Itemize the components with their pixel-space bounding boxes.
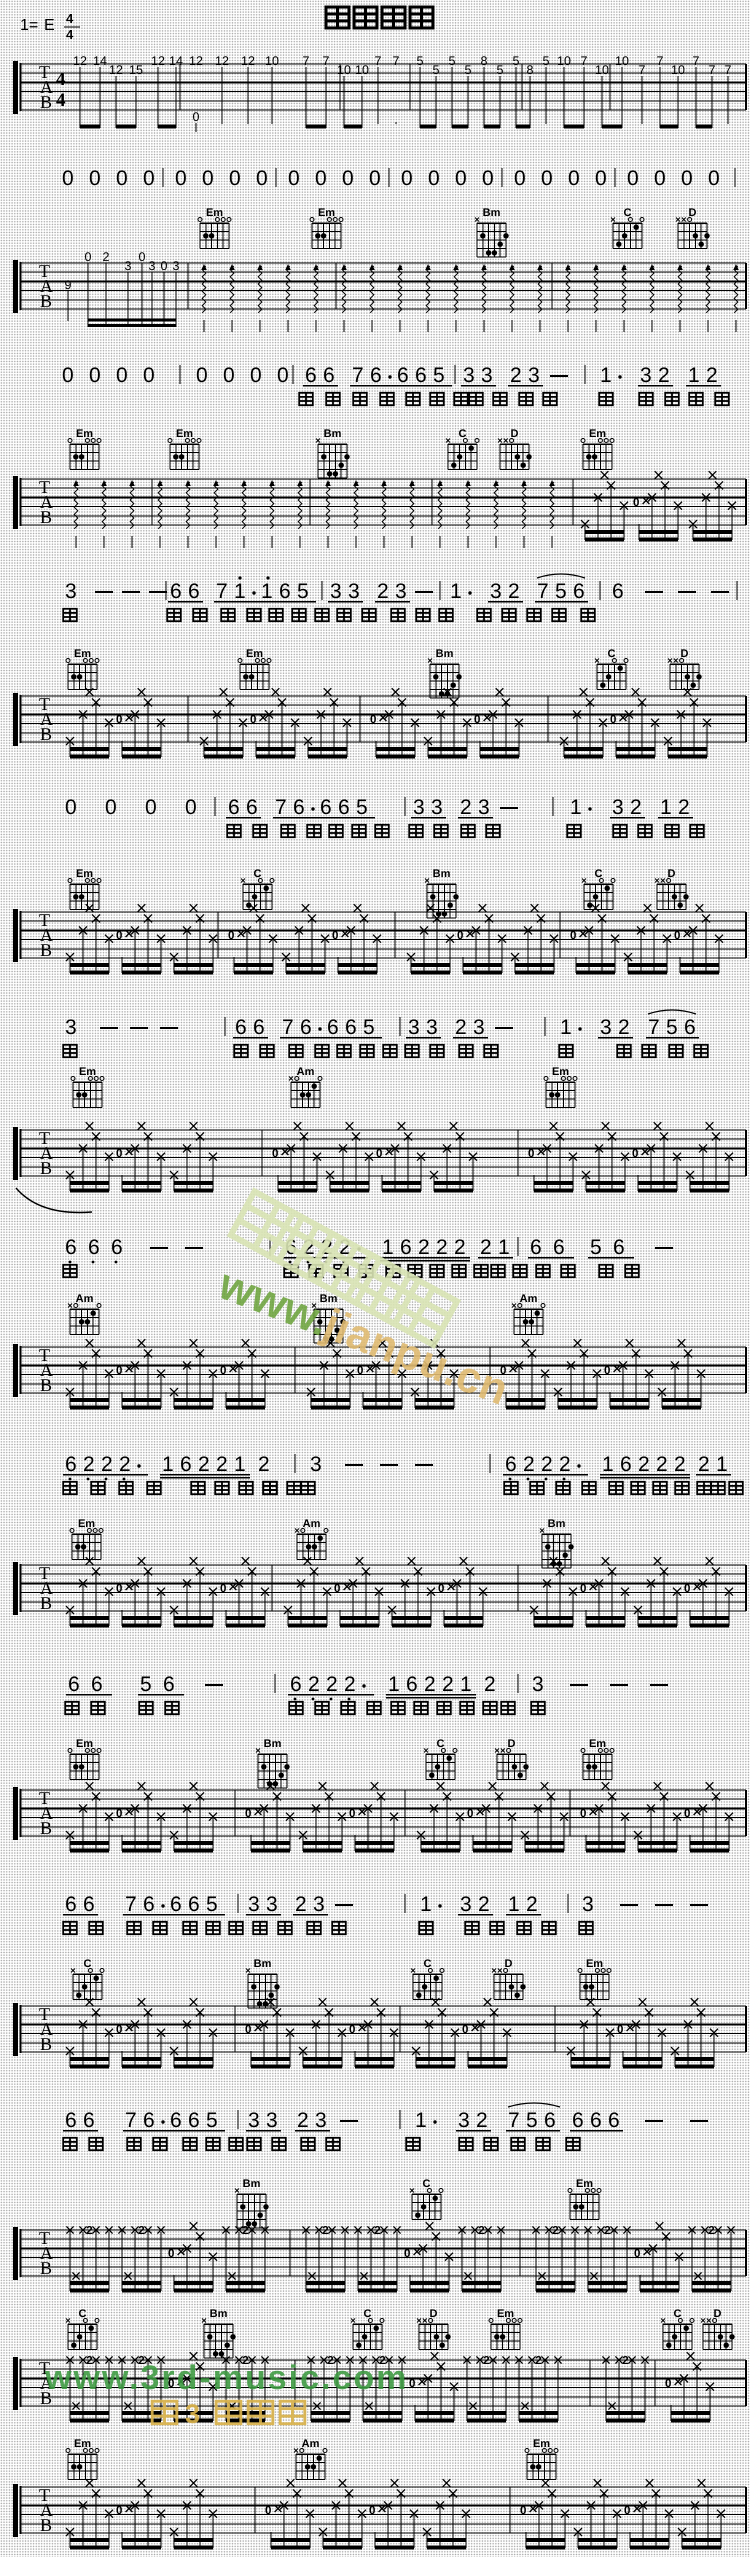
svg-text:Bm: Bm xyxy=(436,648,454,660)
svg-text:Em: Em xyxy=(497,2308,514,2320)
svg-text:Bm: Bm xyxy=(243,2178,261,2190)
svg-text:2: 2 xyxy=(424,1673,436,1696)
svg-text:0: 0 xyxy=(193,110,200,124)
svg-text:7: 7 xyxy=(393,54,400,68)
svg-text:2: 2 xyxy=(436,1236,448,1259)
svg-text:0: 0 xyxy=(229,167,241,190)
svg-text:2: 2 xyxy=(638,1453,650,1476)
svg-text:www.3rd-music.com: www.3rd-music.com xyxy=(44,2359,408,2397)
svg-text:Bm: Bm xyxy=(324,428,342,440)
svg-text:0: 0 xyxy=(202,167,214,190)
svg-text:3: 3 xyxy=(173,259,180,273)
svg-text:0: 0 xyxy=(143,364,155,387)
svg-text:3: 3 xyxy=(528,364,540,387)
svg-text:0: 0 xyxy=(223,364,235,387)
svg-text:2: 2 xyxy=(442,1673,454,1696)
svg-text:2: 2 xyxy=(297,2109,309,2132)
svg-text:Bm: Bm xyxy=(483,207,501,219)
svg-text:4: 4 xyxy=(56,69,66,90)
svg-text:Bm: Bm xyxy=(264,1738,282,1750)
svg-text:5: 5 xyxy=(555,580,567,603)
svg-text:2: 2 xyxy=(83,1453,95,1476)
svg-text:5: 5 xyxy=(465,63,472,77)
svg-text:12: 12 xyxy=(189,54,203,68)
svg-text:6: 6 xyxy=(370,364,382,387)
svg-text:0: 0 xyxy=(250,364,262,387)
svg-text:0: 0 xyxy=(428,167,440,190)
svg-text:1: 1 xyxy=(460,1673,472,1696)
svg-text:3: 3 xyxy=(582,1893,594,1916)
svg-text:1: 1 xyxy=(498,1236,510,1259)
svg-text:2: 2 xyxy=(103,250,110,264)
svg-text:0: 0 xyxy=(627,167,639,190)
svg-text:12: 12 xyxy=(109,63,123,77)
svg-text:15: 15 xyxy=(129,63,143,77)
svg-text:2: 2 xyxy=(308,1673,320,1696)
svg-text:2: 2 xyxy=(119,1453,131,1476)
svg-text:2: 2 xyxy=(656,1453,668,1476)
svg-text:6: 6 xyxy=(327,1016,339,1039)
svg-text:6: 6 xyxy=(613,1236,625,1259)
svg-text:2: 2 xyxy=(258,1453,270,1476)
svg-text:Em: Em xyxy=(79,1066,96,1078)
svg-text:1: 1 xyxy=(388,1673,400,1696)
svg-text:3: 3 xyxy=(600,1016,612,1039)
svg-text:0: 0 xyxy=(185,796,197,819)
svg-text:0: 0 xyxy=(105,796,117,819)
svg-text:6: 6 xyxy=(684,1016,696,1039)
svg-text:Em: Em xyxy=(552,1066,569,1078)
svg-text:7: 7 xyxy=(648,1016,660,1039)
svg-text:5: 5 xyxy=(543,54,550,68)
svg-text:12: 12 xyxy=(151,54,165,68)
svg-text:12: 12 xyxy=(241,54,255,68)
svg-text:Bm: Bm xyxy=(433,868,451,880)
svg-text:1: 1 xyxy=(560,1016,572,1039)
svg-text:Em: Em xyxy=(76,428,93,440)
svg-text:6: 6 xyxy=(572,2109,584,2132)
svg-text:3: 3 xyxy=(460,1893,472,1916)
svg-text:6: 6 xyxy=(65,2109,77,2132)
svg-text:6: 6 xyxy=(188,2109,200,2132)
svg-text:2: 2 xyxy=(541,1453,553,1476)
svg-text:1: 1 xyxy=(234,580,246,603)
svg-text:0: 0 xyxy=(342,167,354,190)
svg-text:Am: Am xyxy=(76,1293,94,1305)
svg-text:B: B xyxy=(40,92,52,112)
svg-text:6: 6 xyxy=(290,1673,302,1696)
svg-text:0: 0 xyxy=(62,167,74,190)
svg-text:3: 3 xyxy=(65,580,77,603)
svg-text:3: 3 xyxy=(125,259,132,273)
svg-text:2: 2 xyxy=(418,1236,430,1259)
svg-text:2: 2 xyxy=(476,2109,488,2132)
svg-text:Am: Am xyxy=(520,1293,538,1305)
svg-text:3: 3 xyxy=(348,580,360,603)
svg-text:6: 6 xyxy=(553,1236,565,1259)
svg-text:0: 0 xyxy=(89,167,101,190)
svg-text:0: 0 xyxy=(85,250,92,264)
svg-text:7: 7 xyxy=(303,54,310,68)
svg-text:6: 6 xyxy=(530,1236,542,1259)
svg-text:Em: Em xyxy=(206,207,223,219)
svg-text:2: 2 xyxy=(484,1673,496,1696)
svg-text:6: 6 xyxy=(505,1453,517,1476)
svg-text:2: 2 xyxy=(478,1893,490,1916)
svg-text:5: 5 xyxy=(513,54,520,68)
svg-text:2: 2 xyxy=(216,1453,228,1476)
svg-text:10: 10 xyxy=(557,54,571,68)
svg-text:6: 6 xyxy=(397,364,409,387)
svg-text:Am: Am xyxy=(302,2438,320,2450)
svg-text:1: 1 xyxy=(600,364,612,387)
svg-text:0: 0 xyxy=(708,167,720,190)
svg-text:B: B xyxy=(40,291,52,311)
svg-text:2: 2 xyxy=(526,1893,538,1916)
svg-text:6: 6 xyxy=(300,1016,312,1039)
svg-text:5: 5 xyxy=(206,2109,218,2132)
svg-text:2: 2 xyxy=(460,796,472,819)
svg-text:5: 5 xyxy=(417,54,424,68)
svg-text:Em: Em xyxy=(589,428,606,440)
svg-text:0: 0 xyxy=(401,167,413,190)
svg-text:2: 2 xyxy=(508,580,520,603)
svg-text:B: B xyxy=(40,724,52,744)
svg-text:B: B xyxy=(40,940,52,960)
svg-text:7: 7 xyxy=(125,1893,137,1916)
svg-text:Em: Em xyxy=(74,648,91,660)
svg-text:B: B xyxy=(40,2034,52,2054)
svg-text:B: B xyxy=(40,507,52,527)
svg-text:6: 6 xyxy=(180,1453,192,1476)
svg-text:0: 0 xyxy=(89,364,101,387)
svg-text:1=: 1= xyxy=(20,17,38,34)
svg-text:Em: Em xyxy=(576,2178,593,2190)
svg-text:4: 4 xyxy=(66,27,74,42)
svg-text:2: 2 xyxy=(678,796,690,819)
svg-text:3: 3 xyxy=(426,1016,438,1039)
svg-text:6: 6 xyxy=(83,2109,95,2132)
svg-text:6: 6 xyxy=(68,1673,80,1696)
svg-text:6: 6 xyxy=(406,1673,418,1696)
svg-text:1: 1 xyxy=(660,796,672,819)
svg-text:5: 5 xyxy=(297,580,309,603)
svg-text:6: 6 xyxy=(608,2109,620,2132)
svg-text:Am: Am xyxy=(303,1518,321,1530)
svg-text:0: 0 xyxy=(369,167,381,190)
svg-text:1: 1 xyxy=(162,1453,174,1476)
svg-text:5: 5 xyxy=(206,1893,218,1916)
svg-text:1: 1 xyxy=(420,1893,432,1916)
svg-text:3: 3 xyxy=(532,1673,544,1696)
svg-text:12: 12 xyxy=(73,54,87,68)
svg-text:0: 0 xyxy=(568,167,580,190)
svg-text:B: B xyxy=(40,2515,52,2535)
svg-text:1: 1 xyxy=(234,1453,246,1476)
svg-text:3: 3 xyxy=(612,796,624,819)
svg-text:Em: Em xyxy=(74,2438,91,2450)
svg-text:7: 7 xyxy=(282,1016,294,1039)
svg-text:E: E xyxy=(44,17,55,34)
svg-text:Em: Em xyxy=(176,428,193,440)
svg-text:1: 1 xyxy=(688,364,700,387)
svg-text:5: 5 xyxy=(590,1236,602,1259)
svg-text:6: 6 xyxy=(88,1236,100,1259)
svg-text:10: 10 xyxy=(595,63,609,77)
svg-text:3: 3 xyxy=(185,2399,200,2429)
svg-text:7: 7 xyxy=(216,580,228,603)
svg-text:3: 3 xyxy=(310,1453,322,1476)
svg-text:2: 2 xyxy=(344,1673,356,1696)
svg-text:B: B xyxy=(40,1375,52,1395)
svg-text:6: 6 xyxy=(620,1453,632,1476)
svg-text:1: 1 xyxy=(716,1453,728,1476)
svg-text:6: 6 xyxy=(65,1893,77,1916)
svg-text:10: 10 xyxy=(337,63,351,77)
svg-text:2: 2 xyxy=(377,580,389,603)
svg-text:7: 7 xyxy=(537,580,549,603)
svg-text:6: 6 xyxy=(279,580,291,603)
svg-text:6: 6 xyxy=(246,796,258,819)
svg-text:5: 5 xyxy=(140,1673,152,1696)
svg-text:0: 0 xyxy=(116,167,128,190)
svg-text:2: 2 xyxy=(618,1016,630,1039)
svg-text:2: 2 xyxy=(455,1016,467,1039)
svg-text:3: 3 xyxy=(481,364,493,387)
svg-text:3: 3 xyxy=(413,796,425,819)
svg-text:6: 6 xyxy=(338,796,350,819)
svg-text:0: 0 xyxy=(143,167,155,190)
svg-text:7: 7 xyxy=(725,63,732,77)
svg-text:8: 8 xyxy=(481,54,488,68)
svg-text:6: 6 xyxy=(65,1236,77,1259)
svg-text:7: 7 xyxy=(709,63,716,77)
svg-text:1: 1 xyxy=(508,1893,520,1916)
svg-text:7: 7 xyxy=(275,796,287,819)
svg-text:9: 9 xyxy=(65,278,72,292)
svg-text:5: 5 xyxy=(666,1016,678,1039)
svg-text:Bm: Bm xyxy=(254,1958,272,1970)
svg-text:6: 6 xyxy=(111,1236,123,1259)
svg-text:3: 3 xyxy=(248,2109,260,2132)
svg-text:5: 5 xyxy=(356,796,368,819)
svg-text:6: 6 xyxy=(293,796,305,819)
svg-text:10: 10 xyxy=(615,54,629,68)
svg-text:Em: Em xyxy=(533,2438,550,2450)
svg-text:6: 6 xyxy=(83,1893,95,1916)
svg-text:Am: Am xyxy=(297,1066,315,1078)
svg-text:3: 3 xyxy=(640,364,652,387)
svg-text:3: 3 xyxy=(473,1016,485,1039)
svg-text:12: 12 xyxy=(215,54,229,68)
svg-text:10: 10 xyxy=(671,63,685,77)
svg-text:7: 7 xyxy=(581,54,588,68)
svg-text:7: 7 xyxy=(323,54,330,68)
svg-text:7: 7 xyxy=(693,54,700,68)
svg-text:Em: Em xyxy=(318,207,335,219)
svg-text:6: 6 xyxy=(143,2109,155,2132)
svg-text:Em: Em xyxy=(246,648,263,660)
svg-text:2: 2 xyxy=(480,1236,492,1259)
svg-text:1: 1 xyxy=(450,580,462,603)
svg-text:2: 2 xyxy=(510,364,522,387)
svg-text:0: 0 xyxy=(541,167,553,190)
svg-text:6: 6 xyxy=(400,1236,412,1259)
svg-text:3: 3 xyxy=(330,580,342,603)
svg-text:2: 2 xyxy=(706,364,718,387)
svg-text:6: 6 xyxy=(228,796,240,819)
svg-text:0: 0 xyxy=(595,167,607,190)
svg-text:7: 7 xyxy=(657,54,664,68)
svg-text:3: 3 xyxy=(431,796,443,819)
svg-text:3: 3 xyxy=(315,2109,327,2132)
svg-text:3: 3 xyxy=(266,1893,278,1916)
svg-text:B: B xyxy=(40,1158,52,1178)
svg-text:2: 2 xyxy=(698,1453,710,1476)
svg-text:Em: Em xyxy=(586,1958,603,1970)
svg-text:3: 3 xyxy=(490,580,502,603)
svg-text:6: 6 xyxy=(345,1016,357,1039)
svg-text:4: 4 xyxy=(56,90,66,111)
svg-text:B: B xyxy=(40,1593,52,1613)
svg-text:3: 3 xyxy=(408,1016,420,1039)
svg-text:0: 0 xyxy=(681,167,693,190)
svg-text:0: 0 xyxy=(256,167,268,190)
svg-text:0: 0 xyxy=(288,167,300,190)
svg-text:2: 2 xyxy=(198,1453,210,1476)
svg-text:6: 6 xyxy=(170,2109,182,2132)
svg-text:3: 3 xyxy=(313,1893,325,1916)
svg-text:6: 6 xyxy=(573,580,585,603)
svg-text:0: 0 xyxy=(161,259,168,273)
svg-text:2: 2 xyxy=(326,1673,338,1696)
svg-text:0: 0 xyxy=(145,796,157,819)
svg-text:3: 3 xyxy=(478,796,490,819)
svg-text:3: 3 xyxy=(65,1016,77,1039)
svg-text:Bm: Bm xyxy=(548,1518,566,1530)
svg-text:6: 6 xyxy=(91,1673,103,1696)
svg-text:6: 6 xyxy=(170,580,182,603)
svg-text:5: 5 xyxy=(433,63,440,77)
svg-text:B: B xyxy=(40,2258,52,2278)
svg-text:0: 0 xyxy=(175,167,187,190)
svg-text:6: 6 xyxy=(235,1016,247,1039)
svg-text:6: 6 xyxy=(188,1893,200,1916)
svg-text:5: 5 xyxy=(363,1016,375,1039)
svg-text:0: 0 xyxy=(62,364,74,387)
svg-text:0: 0 xyxy=(514,167,526,190)
svg-text:1: 1 xyxy=(602,1453,614,1476)
svg-text:5: 5 xyxy=(433,364,445,387)
svg-text:7: 7 xyxy=(125,2109,137,2132)
svg-text:6: 6 xyxy=(305,364,317,387)
svg-text:2: 2 xyxy=(295,1893,307,1916)
svg-text:14: 14 xyxy=(169,54,183,68)
svg-text:Em: Em xyxy=(589,1738,606,1750)
svg-text:6: 6 xyxy=(163,1673,175,1696)
svg-text:5: 5 xyxy=(449,54,456,68)
svg-text:14: 14 xyxy=(93,54,107,68)
svg-text:2: 2 xyxy=(658,364,670,387)
svg-text:6: 6 xyxy=(590,2109,602,2132)
svg-text:6: 6 xyxy=(253,1016,265,1039)
svg-text:3: 3 xyxy=(248,1893,260,1916)
svg-text:0: 0 xyxy=(139,250,146,264)
svg-text:3: 3 xyxy=(463,364,475,387)
svg-text:6: 6 xyxy=(323,364,335,387)
svg-text:2: 2 xyxy=(101,1453,113,1476)
svg-text:0: 0 xyxy=(116,364,128,387)
svg-text:7: 7 xyxy=(508,2109,520,2132)
svg-text:2: 2 xyxy=(523,1453,535,1476)
svg-text:2: 2 xyxy=(454,1236,466,1259)
svg-text:0: 0 xyxy=(315,167,327,190)
svg-text:Bm: Bm xyxy=(210,2308,228,2320)
svg-text:5: 5 xyxy=(526,2109,538,2132)
svg-text:6: 6 xyxy=(65,1453,77,1476)
svg-text:1: 1 xyxy=(415,2109,427,2132)
svg-text:0: 0 xyxy=(277,364,289,387)
svg-text:6: 6 xyxy=(320,796,332,819)
svg-text:3: 3 xyxy=(458,2109,470,2132)
svg-text:6: 6 xyxy=(612,580,624,603)
svg-text:7: 7 xyxy=(639,63,646,77)
svg-text:3: 3 xyxy=(149,259,156,273)
svg-text:7: 7 xyxy=(352,364,364,387)
svg-text:B: B xyxy=(40,1818,52,1838)
svg-text:1: 1 xyxy=(570,796,582,819)
svg-text:4: 4 xyxy=(66,11,74,26)
svg-text:6: 6 xyxy=(415,364,427,387)
svg-text:2: 2 xyxy=(559,1453,571,1476)
svg-text:1: 1 xyxy=(261,580,273,603)
svg-text:1: 1 xyxy=(382,1236,394,1259)
svg-text:Em: Em xyxy=(76,1738,93,1750)
svg-text:10: 10 xyxy=(265,54,279,68)
svg-text:3: 3 xyxy=(266,2109,278,2132)
svg-text:0: 0 xyxy=(196,364,208,387)
svg-text:6: 6 xyxy=(170,1893,182,1916)
svg-text:7: 7 xyxy=(375,54,382,68)
svg-text:0: 0 xyxy=(482,167,494,190)
svg-text:6: 6 xyxy=(544,2109,556,2132)
svg-text:2: 2 xyxy=(674,1453,686,1476)
svg-text:2: 2 xyxy=(630,796,642,819)
svg-text:Em: Em xyxy=(78,1518,95,1530)
svg-text:3: 3 xyxy=(395,580,407,603)
svg-text:10: 10 xyxy=(355,63,369,77)
svg-text:6: 6 xyxy=(143,1893,155,1916)
svg-text:0: 0 xyxy=(65,796,77,819)
svg-text:0: 0 xyxy=(654,167,666,190)
svg-text:8: 8 xyxy=(527,63,534,77)
svg-text:0: 0 xyxy=(455,167,467,190)
svg-text:5: 5 xyxy=(497,63,504,77)
svg-text:Em: Em xyxy=(76,868,93,880)
svg-text:6: 6 xyxy=(188,580,200,603)
